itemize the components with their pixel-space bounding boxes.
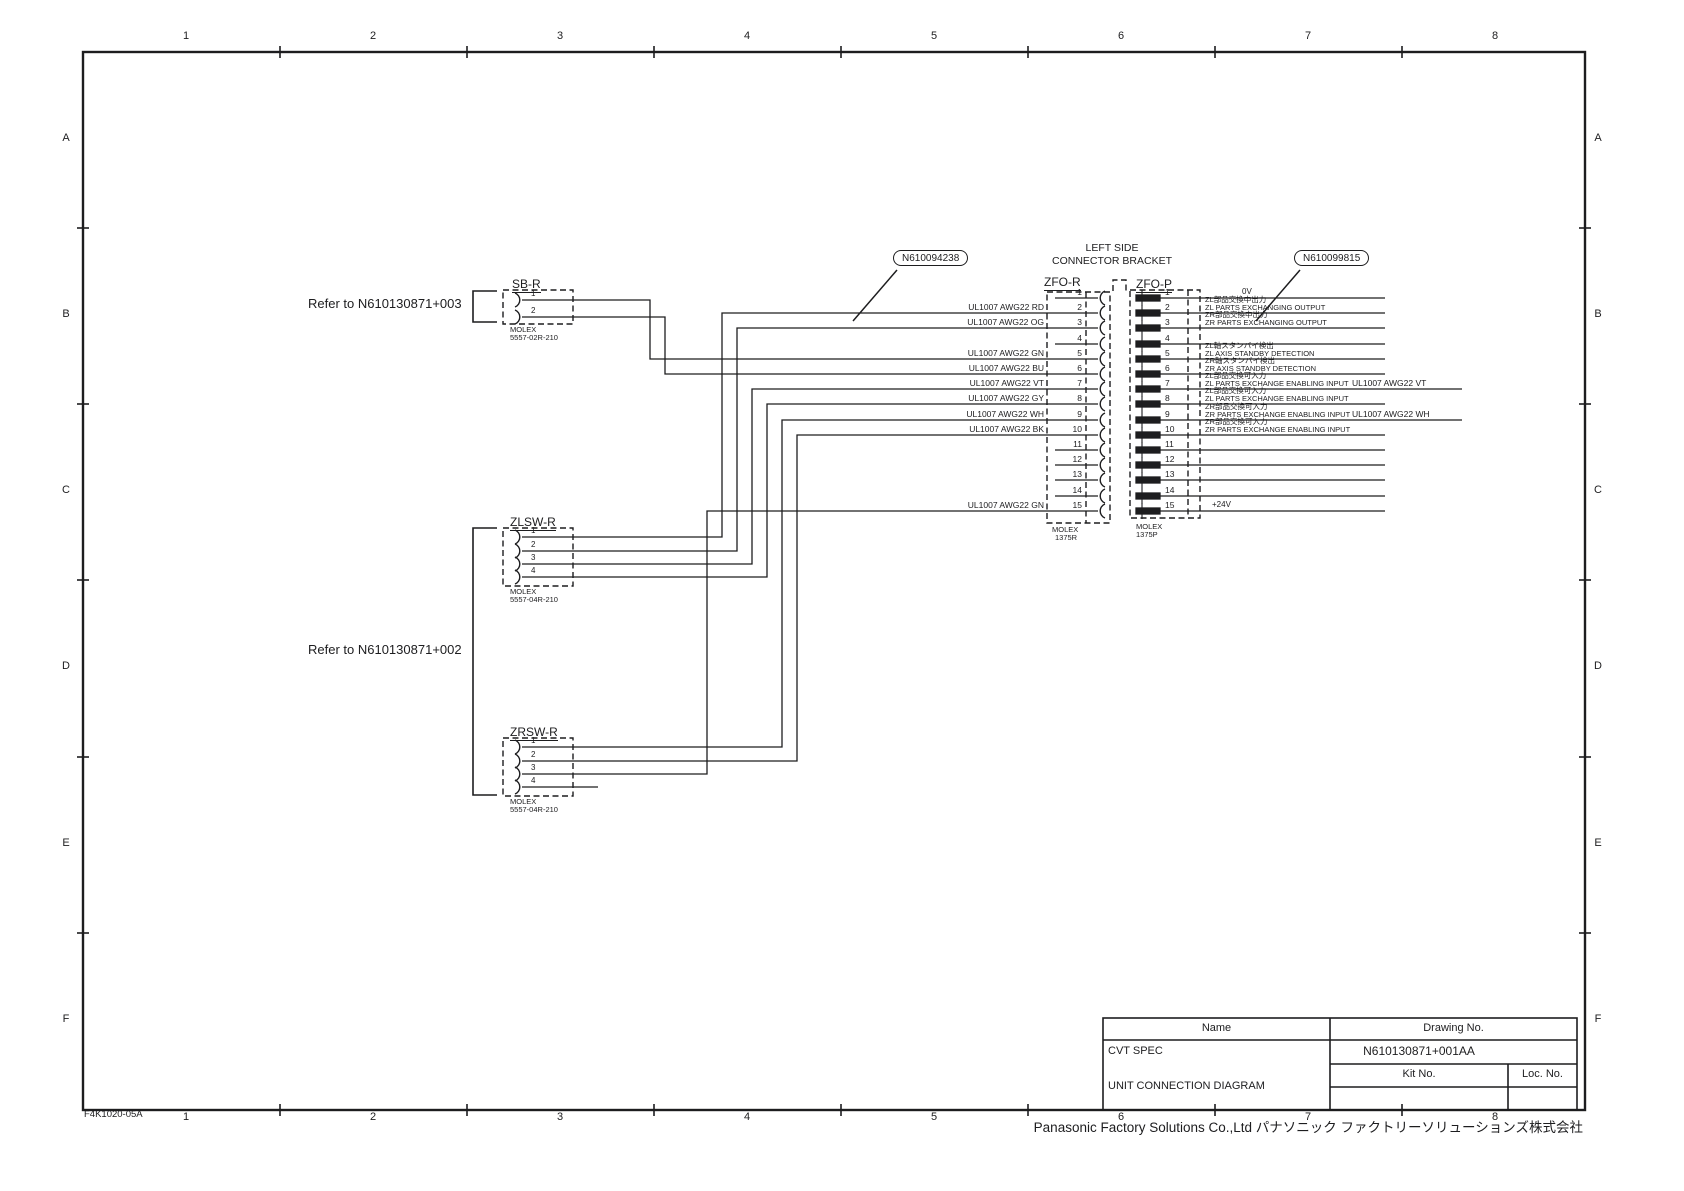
zfo-p-pin-contact: [1136, 432, 1160, 438]
zfo-r-pin-contact: [1100, 321, 1105, 335]
zfo-p-pin-number: 13: [1165, 470, 1174, 479]
zfo-r-pin-contact: [1100, 458, 1105, 472]
zfo-p-pin-number: 14: [1165, 486, 1174, 495]
zone-column-label: 7: [1300, 31, 1316, 43]
title-block-name-header: Name: [1103, 1023, 1330, 1035]
zfo-p-pin-number: 8: [1165, 394, 1170, 403]
wire-spec-label: UL1007 AWG22 WH: [944, 410, 1044, 419]
zfo-r-pin-number: 15: [1052, 501, 1082, 510]
signal-label-en: ZR PARTS EXCHANGING OUTPUT: [1205, 319, 1327, 327]
part-balloon-left: N610094238: [893, 250, 968, 266]
zfo-p-part: 1375P: [1136, 531, 1158, 539]
zfo-p-pin-number: 7: [1165, 379, 1170, 388]
zfo-r-pin-contact: [1100, 337, 1105, 351]
zfo-p-pin-number: 6: [1165, 364, 1170, 373]
generated-geometry: [77, 46, 1591, 1116]
wire: [522, 420, 1098, 747]
sb-r-pin-number: 1: [531, 290, 535, 298]
zone-column-label: 7: [1300, 1112, 1316, 1124]
zone-column-label: 3: [552, 1112, 568, 1124]
zfo-r-pin-contact: [1100, 428, 1105, 442]
pin-contact: [515, 780, 520, 794]
title-block-name-value: CVT SPEC: [1108, 1046, 1163, 1058]
refer-bracket-bottom: [473, 528, 497, 795]
zfo-r-pin-number: 8: [1052, 394, 1082, 403]
sb-r-housing: [503, 290, 573, 324]
wire-spec-label: UL1007 AWG22 GY: [944, 394, 1044, 403]
title-block-drawing-no-value: N610130871+001AA: [1330, 1045, 1508, 1058]
form-number: F4K1020-05A: [84, 1110, 143, 1120]
title-block-loc-no-header: Loc. No.: [1508, 1069, 1577, 1081]
zfo-r-pin-contact: [1100, 352, 1105, 366]
zrsw-r-pin-number: 4: [531, 777, 535, 785]
zfo-p-pin-contact: [1136, 447, 1160, 453]
zfo-r-pin-contact: [1100, 397, 1105, 411]
zone-column-label: 5: [926, 1112, 942, 1124]
zone-row-label: F: [58, 1014, 74, 1026]
zfo-p-pin-contact: [1136, 356, 1160, 362]
zfo-r-pin-contact: [1100, 473, 1105, 487]
zfo-r-pin-number: 14: [1052, 486, 1082, 495]
zfo-p-pin-number: 10: [1165, 425, 1174, 434]
pin-contact: [515, 293, 520, 307]
sb-r-pin-number: 2: [531, 307, 535, 315]
zrsw-r-pin-number: 3: [531, 764, 535, 772]
zfo-p-pin-number: 2: [1165, 303, 1170, 312]
zone-column-label: 6: [1113, 31, 1129, 43]
zone-column-label: 2: [365, 1112, 381, 1124]
zlsw-r-pin-number: 3: [531, 554, 535, 562]
zfo-r-pin-contact: [1100, 382, 1105, 396]
pin-contact: [515, 570, 520, 584]
zfo-p-pin-number: 11: [1165, 440, 1174, 449]
drawing-sheet: Refer to N610130871+003 Refer to N610130…: [0, 0, 1684, 1191]
zfo-r-pin-contact: [1100, 443, 1105, 457]
zone-column-label: 1: [178, 1112, 194, 1124]
zone-column-label: 3: [552, 31, 568, 43]
pin-contact: [515, 754, 520, 768]
zone-column-label: 8: [1487, 1112, 1503, 1124]
wire-spec-label: UL1007 AWG22 WH: [1352, 410, 1430, 419]
zrsw-r-pin-number: 2: [531, 751, 535, 759]
title-block-kit-no-header: Kit No.: [1330, 1069, 1508, 1081]
zone-row-label: A: [1590, 133, 1606, 145]
zone-row-label: B: [58, 309, 74, 321]
zone-column-label: 1: [178, 31, 194, 43]
wire-spec-label: UL1007 AWG22 GN: [944, 349, 1044, 358]
pin-contact: [515, 740, 520, 754]
refer-note-top: Refer to N610130871+003: [308, 297, 462, 311]
zfo-p-pin-contact: [1136, 508, 1160, 514]
zfo-r-pin-number: 5: [1052, 349, 1082, 358]
zfo-p-pin-number: 5: [1165, 349, 1170, 358]
zfo-p-pin-contact: [1136, 386, 1160, 392]
sb-r-part: 5557-02R-210: [510, 334, 558, 342]
wire-spec-label: UL1007 AWG22 GN: [944, 501, 1044, 510]
bracket-title-line2: CONNECTOR BRACKET: [1032, 256, 1192, 267]
pin-contact: [515, 767, 520, 781]
zfo-r-pin-contact: [1100, 306, 1105, 320]
zfo-p-pin-contact: [1136, 341, 1160, 347]
zfo-r-pin-contact: [1100, 291, 1105, 305]
zone-row-label: C: [1590, 485, 1606, 497]
pin-contact: [515, 544, 520, 558]
pin-contact: [515, 310, 520, 324]
zone-row-label: D: [58, 661, 74, 673]
zfo-r-pin-number: 11: [1052, 440, 1082, 449]
wire-spec-label: UL1007 AWG22 BU: [944, 364, 1044, 373]
zfo-r-pin-number: 6: [1052, 364, 1082, 373]
pin-contact: [515, 530, 520, 544]
zone-row-label: C: [58, 485, 74, 497]
zone-column-label: 4: [739, 1112, 755, 1124]
title-block-drawing-no-header: Drawing No.: [1330, 1023, 1577, 1035]
zfo-p-pin-number: 12: [1165, 455, 1174, 464]
zfo-p-pin-contact: [1136, 493, 1160, 499]
wire: [522, 328, 1098, 551]
signal-label-en: ZR PARTS EXCHANGE ENABLING INPUT: [1205, 426, 1350, 434]
zone-column-label: 6: [1113, 1112, 1129, 1124]
zrsw-r-pin-number: 1: [531, 737, 535, 745]
zfo-r-pin-number: 2: [1052, 303, 1082, 312]
zfo-p-pin-number: 9: [1165, 410, 1170, 419]
zfo-r-pin-contact: [1100, 489, 1105, 503]
zfo-r-pin-number: 1: [1052, 288, 1082, 297]
zfo-r-pin-number: 13: [1052, 470, 1082, 479]
zfo-r-pin-number: 7: [1052, 379, 1082, 388]
zfo-p-pin-contact: [1136, 371, 1160, 377]
wire: [522, 435, 1098, 761]
zfo-r-pin-contact: [1100, 504, 1105, 518]
zone-row-label: E: [1590, 838, 1606, 850]
wire-spec-label: UL1007 AWG22 RD: [944, 303, 1044, 312]
zfo-p-pin-contact: [1136, 401, 1160, 407]
part-balloon-right: N610099815: [1294, 250, 1369, 266]
wire-spec-label: UL1007 AWG22 BK: [944, 425, 1044, 434]
zfo-p-pin-contact: [1136, 417, 1160, 423]
zlsw-r-pin-number: 2: [531, 541, 535, 549]
zone-row-label: E: [58, 838, 74, 850]
zfo-r-pin-number: 12: [1052, 455, 1082, 464]
zfo-p-pin-contact: [1136, 325, 1160, 331]
wire-spec-label: UL1007 AWG22 VT: [944, 379, 1044, 388]
voltage-tag: +24V: [1212, 501, 1231, 509]
zlsw-r-pin-number: 1: [531, 527, 535, 535]
zfo-r-pin-contact: [1100, 367, 1105, 381]
zfo-r-pin-number: 4: [1052, 334, 1082, 343]
sb-r-label: SB-R: [512, 278, 541, 293]
zfo-r-part: 1375R: [1055, 534, 1077, 542]
zfo-p-pin-number: 1: [1165, 288, 1170, 297]
zfo-r-pin-number: 9: [1052, 410, 1082, 419]
mating-indicator: [1113, 280, 1126, 291]
wire-spec-label: UL1007 AWG22 OG: [944, 318, 1044, 327]
frame-border: [83, 52, 1585, 1110]
refer-bracket-top: [473, 291, 497, 322]
zlsw-r-pin-number: 4: [531, 567, 535, 575]
zfo-p-pin-number: 3: [1165, 318, 1170, 327]
pin-contact: [515, 557, 520, 571]
zfo-p-pin-contact: [1136, 477, 1160, 483]
zfo-p-pin-contact: [1136, 462, 1160, 468]
zone-row-label: B: [1590, 309, 1606, 321]
zfo-p-pin-number: 4: [1165, 334, 1170, 343]
zone-column-label: 2: [365, 31, 381, 43]
zfo-r-pin-number: 3: [1052, 318, 1082, 327]
refer-note-bottom: Refer to N610130871+002: [308, 643, 462, 657]
zfo-p-pin-contact: [1136, 295, 1160, 301]
zlsw-r-part: 5557-04R-210: [510, 596, 558, 604]
title-block-title-value: UNIT CONNECTION DIAGRAM: [1108, 1081, 1265, 1093]
harness-wires: [522, 300, 1098, 787]
zfo-p-pin-number: 15: [1165, 501, 1174, 510]
zone-column-label: 8: [1487, 31, 1503, 43]
zone-row-label: A: [58, 133, 74, 145]
zone-row-label: F: [1590, 1014, 1606, 1026]
bracket-title-line1: LEFT SIDE: [1032, 243, 1192, 254]
zone-column-label: 5: [926, 31, 942, 43]
wire-spec-label: UL1007 AWG22 VT: [1352, 379, 1426, 388]
zfo-r-pin-number: 10: [1052, 425, 1082, 434]
zone-column-label: 4: [739, 31, 755, 43]
zfo-r-pin-contact: [1100, 413, 1105, 427]
zrsw-r-part: 5557-04R-210: [510, 806, 558, 814]
zone-row-label: D: [1590, 661, 1606, 673]
zfo-p-pin-contact: [1136, 310, 1160, 316]
schematic-canvas: [0, 0, 1684, 1191]
